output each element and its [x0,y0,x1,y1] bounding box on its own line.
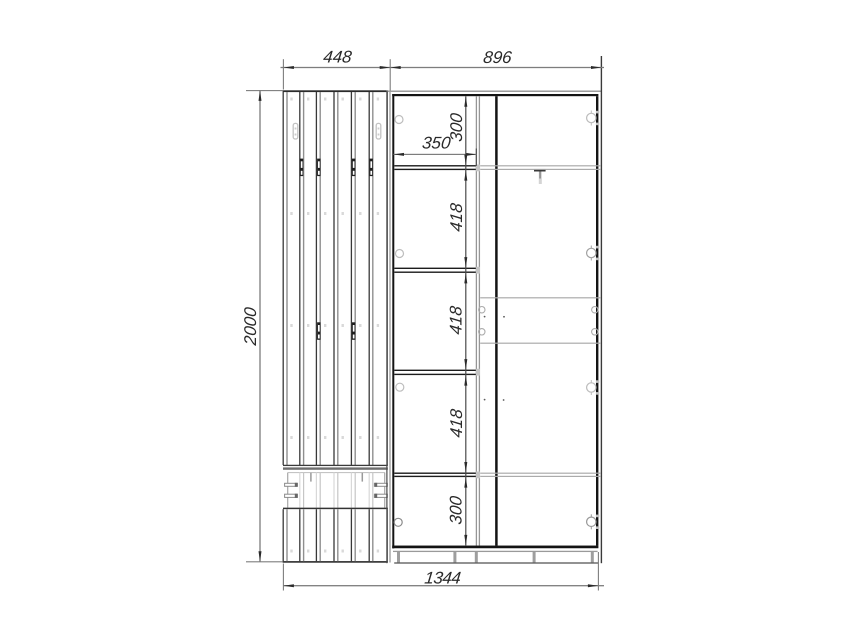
svg-text:896: 896 [482,48,513,67]
svg-text:418: 418 [447,408,466,439]
svg-text:300: 300 [447,112,466,143]
svg-text:1344: 1344 [424,569,462,588]
svg-text:2000: 2000 [241,306,260,347]
svg-text:418: 418 [447,305,466,336]
svg-text:300: 300 [447,495,466,526]
svg-text:418: 418 [447,202,466,233]
svg-text:448: 448 [322,48,353,67]
